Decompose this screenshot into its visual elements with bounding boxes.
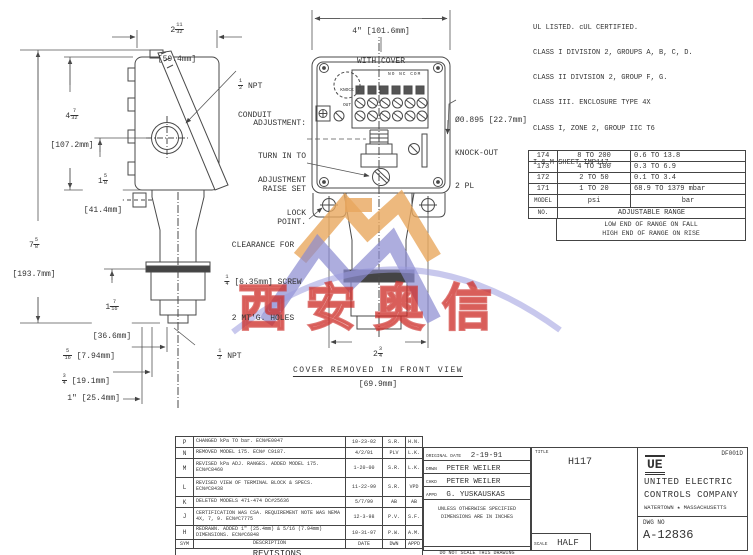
view-caption: COVER REMOVED IN FRONT VIEW xyxy=(293,366,463,377)
callout-npt-bottom: 12 NPT xyxy=(198,341,242,371)
revision-row: NREMOVED MODEL 175. ECN# C9187.4/2/01PLV… xyxy=(176,448,422,459)
dwg-number: A-12836 xyxy=(643,528,693,542)
revision-row: MREVISED kPa ADJ. RANGES. ADDED MODEL 17… xyxy=(176,459,422,478)
dim-1in: 1" [25.4mm] xyxy=(40,394,120,403)
dim-34: 34 [19.1mm] xyxy=(30,366,110,396)
no-scale-note: DO NOT SCALE THIS DRAWING xyxy=(424,547,530,555)
range-table-notes: LOW END OF RANGE ON FALL HIGH END OF RAN… xyxy=(556,219,746,241)
scale-box: SCALE HALF xyxy=(532,533,591,550)
dwg-no-label: DWG NO xyxy=(643,519,665,526)
revisions-header-row: SYM DESCRIPTION DATE DWN APPD xyxy=(176,540,422,549)
ue-logo: UE xyxy=(645,455,665,475)
knockout-circle-label: KNOCK OUT xyxy=(340,78,354,118)
drawing-info-block: ORIGINAL DATE 2-19-91 DRWN PETER WEILER … xyxy=(423,447,531,551)
revision-row: HREDRAWN. ADDED 1" (25.4mm) & 5/16 (7.94… xyxy=(176,526,422,540)
revision-row: JCERTIFICATION WAS CSA. REQUIREMENT NOTE… xyxy=(176,508,422,526)
engineering-drawing-sheet: 西安奥信 21132 [59.4mm] 4" [101.6mm] WITH CO… xyxy=(0,0,753,555)
terminal-contact-labels: NO NC COM xyxy=(388,72,421,77)
revisions-table: PCHANGED kPa TO bar. ECN#E004710-23-02S.… xyxy=(175,436,423,555)
drawing-title: H117 xyxy=(568,457,592,468)
callout-knockout: Ø0.895 [22.7mm] KNOCK-OUT 2 PL xyxy=(455,93,527,214)
callout-clearance: CLEARANCE FOR 14 [6.35mm] SCREW 2 MT'G. … xyxy=(224,216,301,349)
revision-row: PCHANGED kPa TO bar. ECN#E004710-23-02S.… xyxy=(176,437,422,448)
dim-lower-height: 158 [41.4mm] xyxy=(83,157,123,233)
approved-by-row: APPD G. YUSKAUSKAS xyxy=(424,487,530,500)
revisions-title: REVISIONS xyxy=(176,549,378,555)
dim-top-width: 21132 [59.4mm] xyxy=(158,6,196,82)
title-label: TITLE xyxy=(535,450,549,455)
adjustable-range-table: 1748 TO 2000.6 TO 13.8 1734 TO 1000.3 TO… xyxy=(528,150,746,241)
dimension-spec-note: UNLESS OTHERWISE SPECIFIED DIMENSIONS AR… xyxy=(424,500,530,547)
company-location: WATERTOWN ★ MASSACHUSETTS xyxy=(644,504,727,511)
revision-row: LREVISED VIEW OF TERMINAL BLOCK & SPECS.… xyxy=(176,478,422,497)
adjustment-lock-screw xyxy=(373,169,390,186)
revisions-title-row: REVISIONS xyxy=(176,549,422,555)
company-name-line2: CONTROLS COMPANY xyxy=(644,490,738,500)
company-name-line1: UNITED ELECTRIC xyxy=(644,477,733,487)
title-block: TITLE H117 SCALE HALF DF001D UE UNITED E… xyxy=(531,447,748,551)
dim-total-height: 758 [193.7mm] xyxy=(11,221,56,297)
revision-row: KDELETED MODELS 471-474 DC#256365/7/99AB… xyxy=(176,497,422,508)
form-number: DF001D xyxy=(721,450,743,457)
